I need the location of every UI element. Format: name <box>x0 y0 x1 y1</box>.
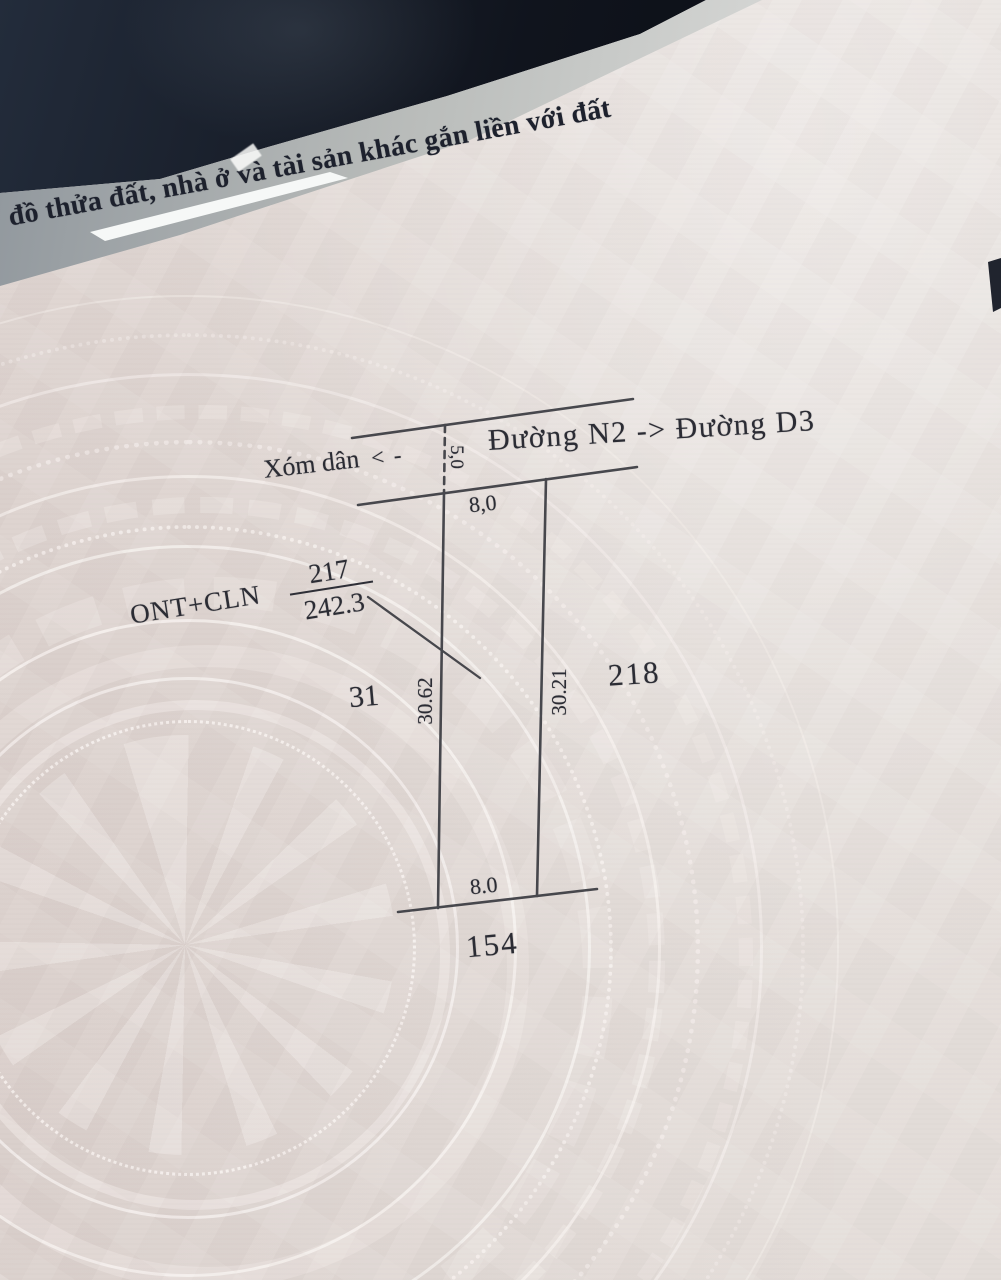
land-certificate-photo: đồ thửa đất, nhà ở và tài sản khác gắn l… <box>0 0 1001 1280</box>
bottom-neighbor-label: 154 <box>465 925 520 965</box>
right-neighbor-label: 218 <box>607 654 662 694</box>
top-frontage-dim: 8,0 <box>468 490 498 519</box>
road-width-dim: 5,0 <box>445 439 467 475</box>
parcel-right-boundary-line <box>537 479 546 896</box>
parcel-left-boundary-line <box>438 493 444 908</box>
parcel-sketch-svg <box>0 0 1001 1280</box>
right-side-dim: 30.21 <box>547 660 569 724</box>
parcel-leader-line <box>368 597 480 678</box>
road-bottom-edge-line <box>358 467 637 505</box>
bottom-frontage-dim: 8.0 <box>469 872 499 901</box>
parcel-number-area-fraction: 217 242.3 <box>285 550 378 628</box>
left-arrow: < - <box>370 442 405 471</box>
left-neighbor-label: 31 <box>348 679 381 715</box>
left-side-dim: 30.62 <box>413 669 435 733</box>
